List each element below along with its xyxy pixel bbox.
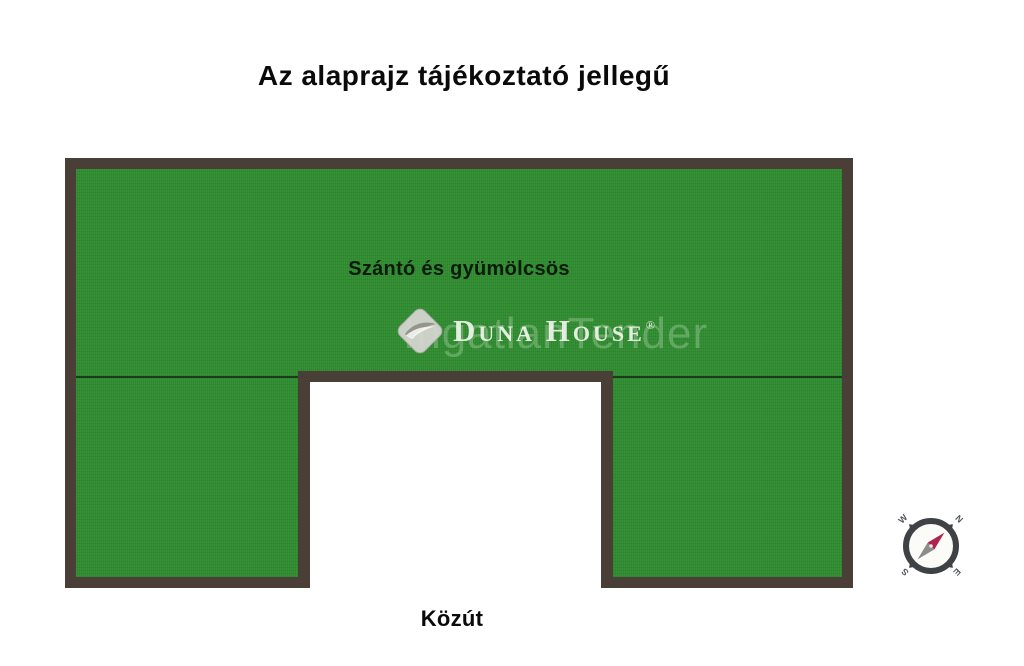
compass-south-label: S [899,566,910,577]
duna-house-logo: Duna House® [393,302,654,360]
road-label: Közút [0,606,904,632]
registered-trademark-symbol: ® [646,318,655,333]
parcel-outline: Szántó és gyümölcsös IngatlanTender Duna… [65,158,853,588]
duna-house-logo-text: Duna House [453,313,645,349]
land-use-label: Szántó és gyümölcsös [65,258,853,281]
duna-house-logo-icon [393,304,447,358]
compass-east-label: E [951,566,962,577]
compass-north-label: N [953,513,965,525]
compass-west-label: W [896,512,909,525]
floorplan-canvas: Az alaprajz tájékoztató jellegű Szántó é… [0,0,1024,666]
disclaimer-title: Az alaprajz tájékoztató jellegű [0,60,928,92]
road-notch [298,371,613,588]
road-notch-gap [310,382,601,588]
compass-icon: W N S E [892,504,970,584]
